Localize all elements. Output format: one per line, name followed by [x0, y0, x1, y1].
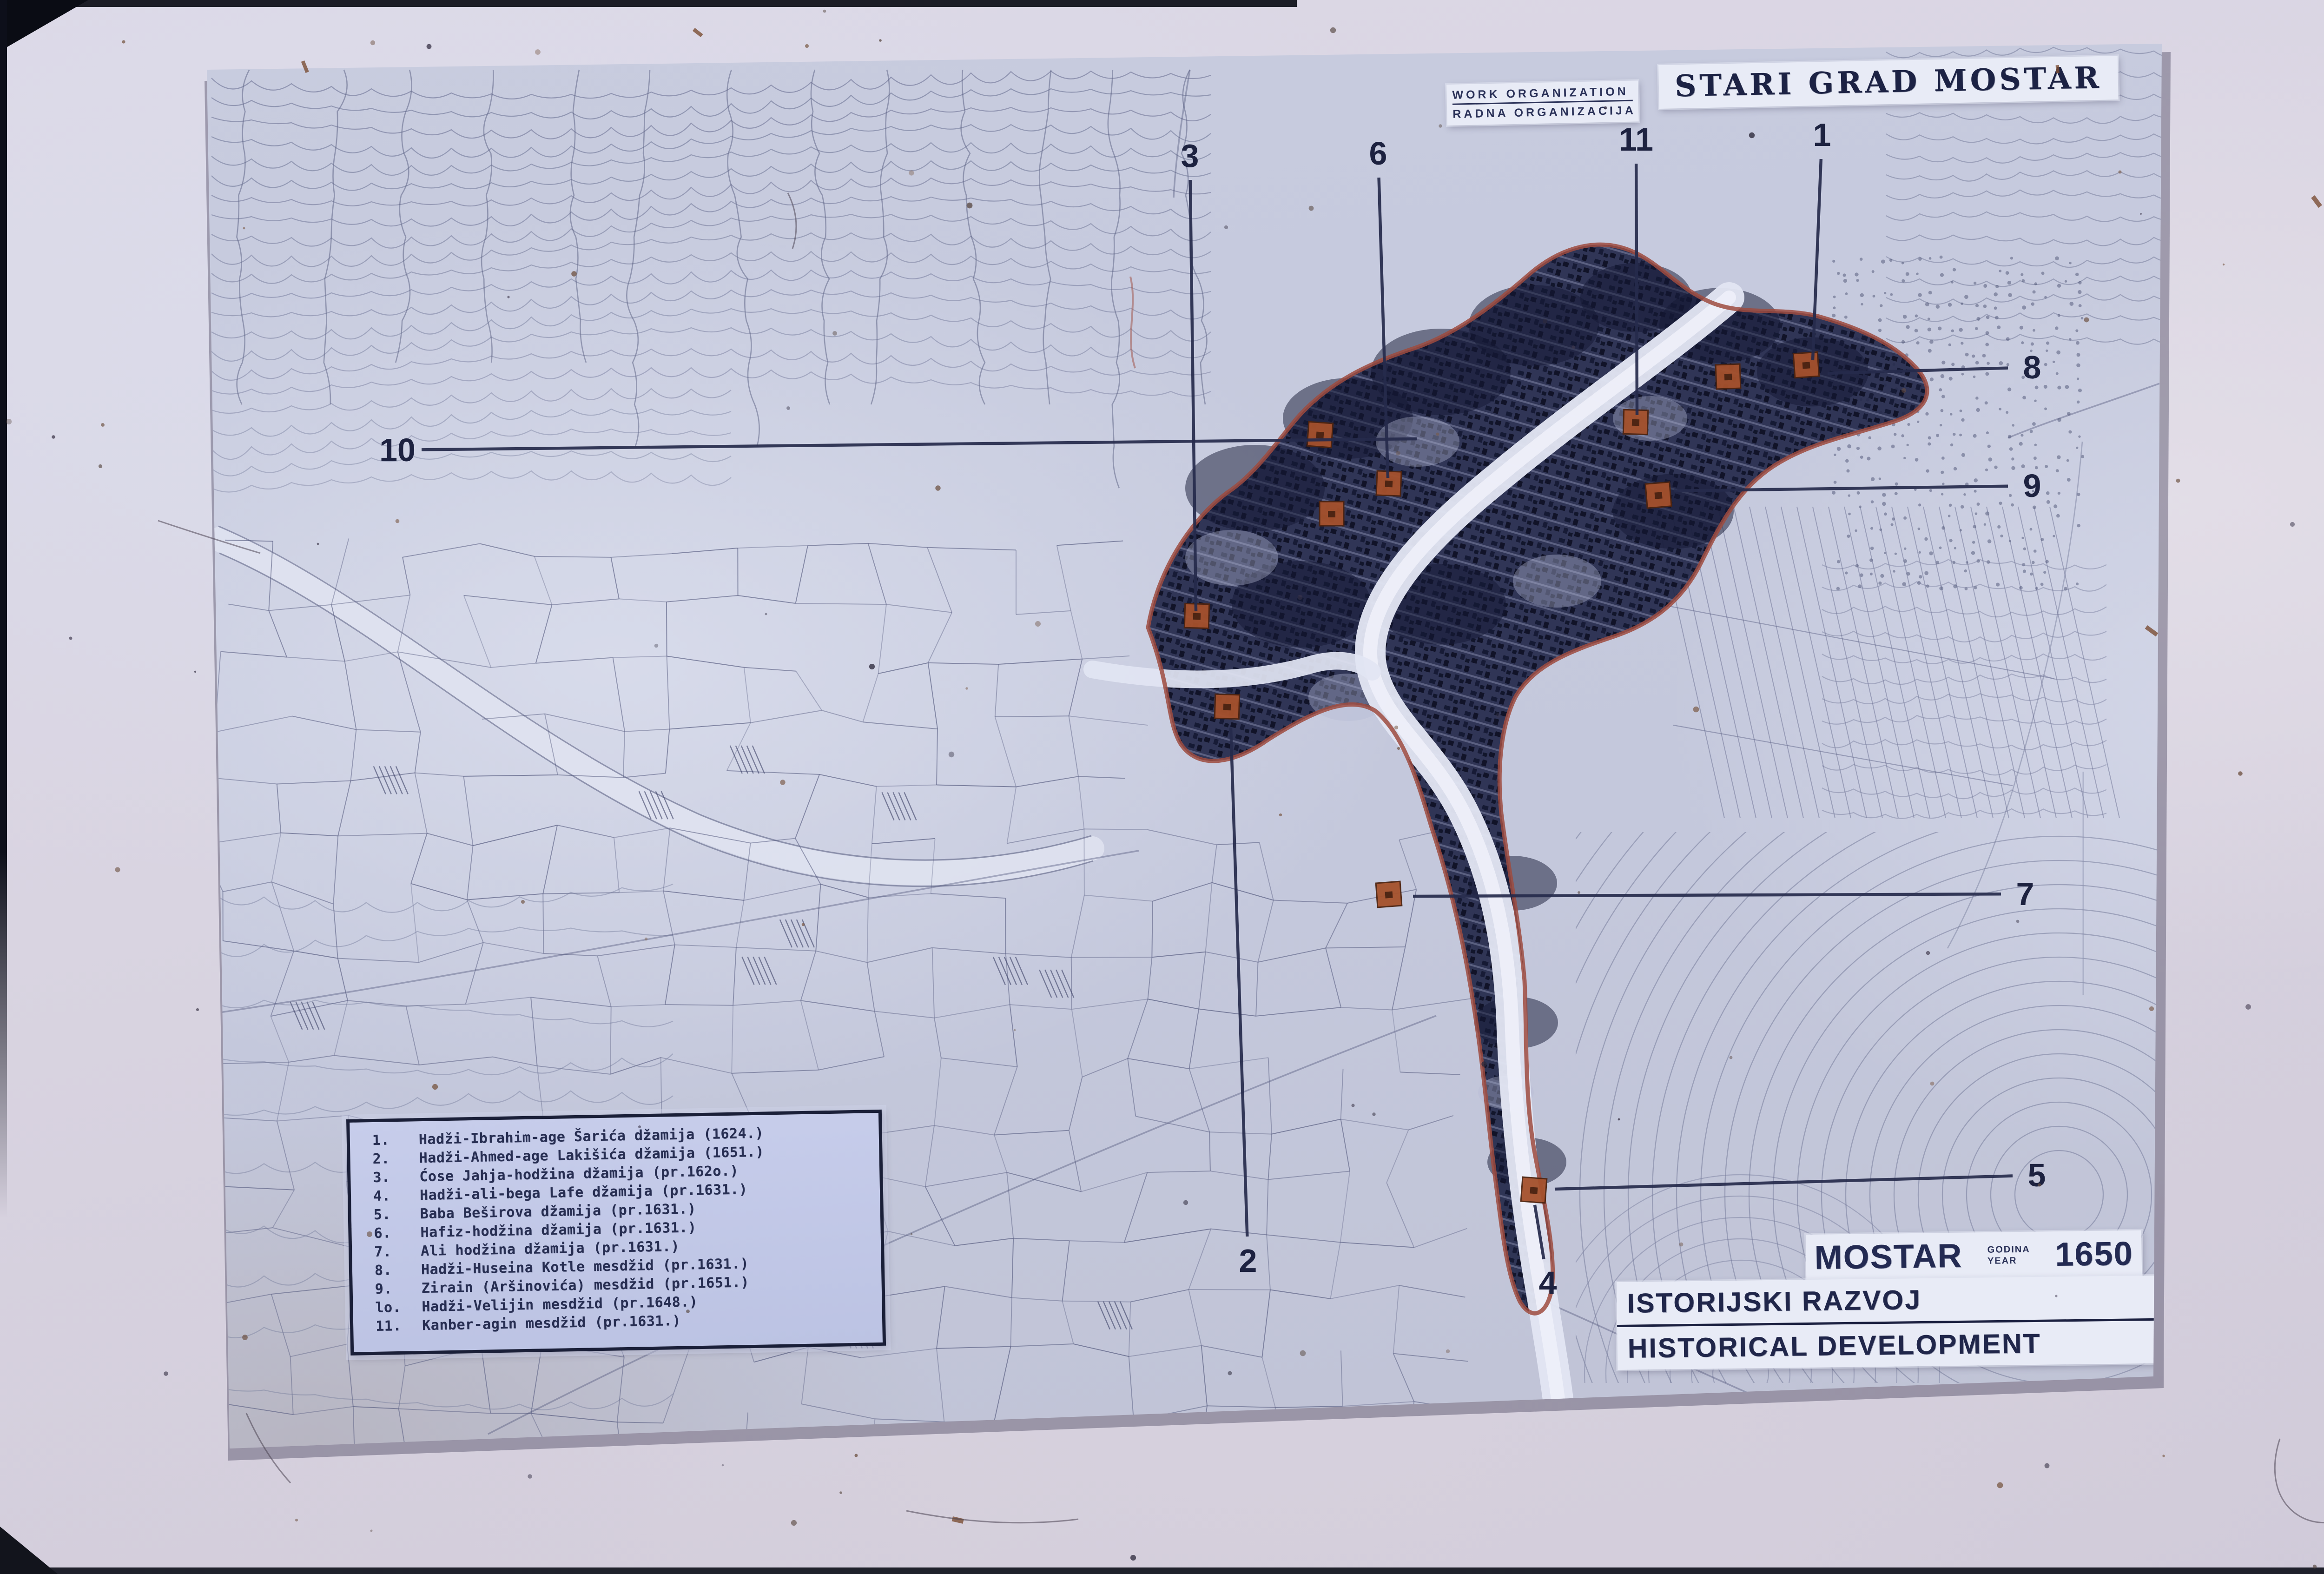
photographed-map: 1234567891011 WORK ORGANIZATION RADNA OR… [0, 0, 2324, 1574]
photo-vignette [0, 0, 2324, 1574]
